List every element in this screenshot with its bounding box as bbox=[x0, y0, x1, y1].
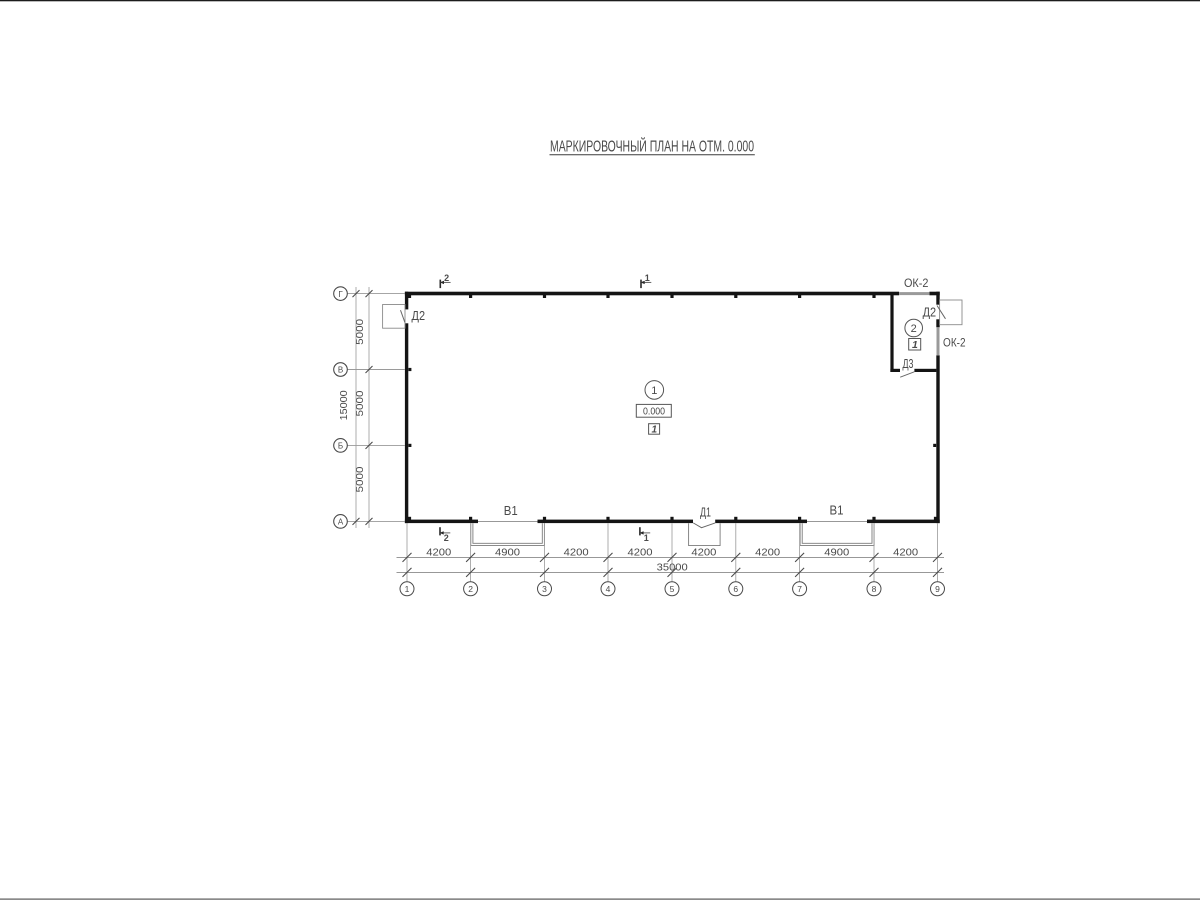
svg-text:ОК-2: ОК-2 bbox=[904, 276, 929, 290]
svg-text:Д3: Д3 bbox=[903, 357, 914, 371]
svg-text:МАРКИРОВОЧНЫЙ ПЛАН НА ОТМ. 0.0: МАРКИРОВОЧНЫЙ ПЛАН НА ОТМ. 0.000 bbox=[550, 138, 754, 156]
svg-text:0.000: 0.000 bbox=[643, 406, 665, 417]
svg-text:4200: 4200 bbox=[426, 546, 451, 558]
svg-text:1: 1 bbox=[405, 584, 410, 594]
svg-text:Д1: Д1 bbox=[700, 506, 711, 520]
svg-text:5000: 5000 bbox=[354, 390, 366, 416]
svg-text:4200: 4200 bbox=[628, 546, 653, 558]
svg-text:Г: Г bbox=[338, 290, 343, 299]
svg-text:4200: 4200 bbox=[755, 546, 780, 558]
svg-text:1: 1 bbox=[652, 424, 658, 435]
svg-text:1: 1 bbox=[645, 273, 650, 283]
svg-text:4200: 4200 bbox=[564, 546, 589, 558]
svg-text:В: В bbox=[338, 366, 343, 375]
svg-text:1: 1 bbox=[651, 385, 657, 397]
svg-text:В1: В1 bbox=[504, 504, 518, 518]
svg-text:5000: 5000 bbox=[354, 466, 366, 492]
svg-text:4900: 4900 bbox=[495, 546, 520, 558]
svg-text:4200: 4200 bbox=[691, 546, 716, 558]
svg-text:1: 1 bbox=[912, 339, 918, 351]
svg-text:9: 9 bbox=[935, 584, 940, 594]
svg-text:4: 4 bbox=[606, 584, 611, 594]
svg-text:4200: 4200 bbox=[893, 546, 918, 558]
svg-text:1: 1 bbox=[644, 533, 649, 543]
svg-text:2: 2 bbox=[468, 584, 473, 594]
svg-text:35000: 35000 bbox=[657, 562, 688, 574]
svg-text:5: 5 bbox=[670, 584, 675, 594]
svg-text:2: 2 bbox=[444, 533, 449, 543]
svg-text:5000: 5000 bbox=[354, 319, 366, 345]
svg-text:Б: Б bbox=[338, 442, 343, 451]
svg-text:ОК-2: ОК-2 bbox=[943, 335, 966, 349]
svg-text:4900: 4900 bbox=[824, 546, 849, 558]
svg-text:Д2: Д2 bbox=[923, 305, 937, 319]
svg-text:Д2: Д2 bbox=[412, 309, 426, 323]
svg-text:2: 2 bbox=[911, 323, 917, 335]
svg-text:3: 3 bbox=[542, 584, 547, 594]
svg-text:8: 8 bbox=[872, 584, 877, 594]
svg-text:6: 6 bbox=[733, 584, 738, 594]
svg-text:А: А bbox=[338, 518, 344, 527]
svg-text:В1: В1 bbox=[830, 504, 844, 518]
svg-text:15000: 15000 bbox=[338, 390, 350, 420]
svg-text:2: 2 bbox=[444, 273, 449, 283]
svg-text:7: 7 bbox=[797, 584, 802, 594]
